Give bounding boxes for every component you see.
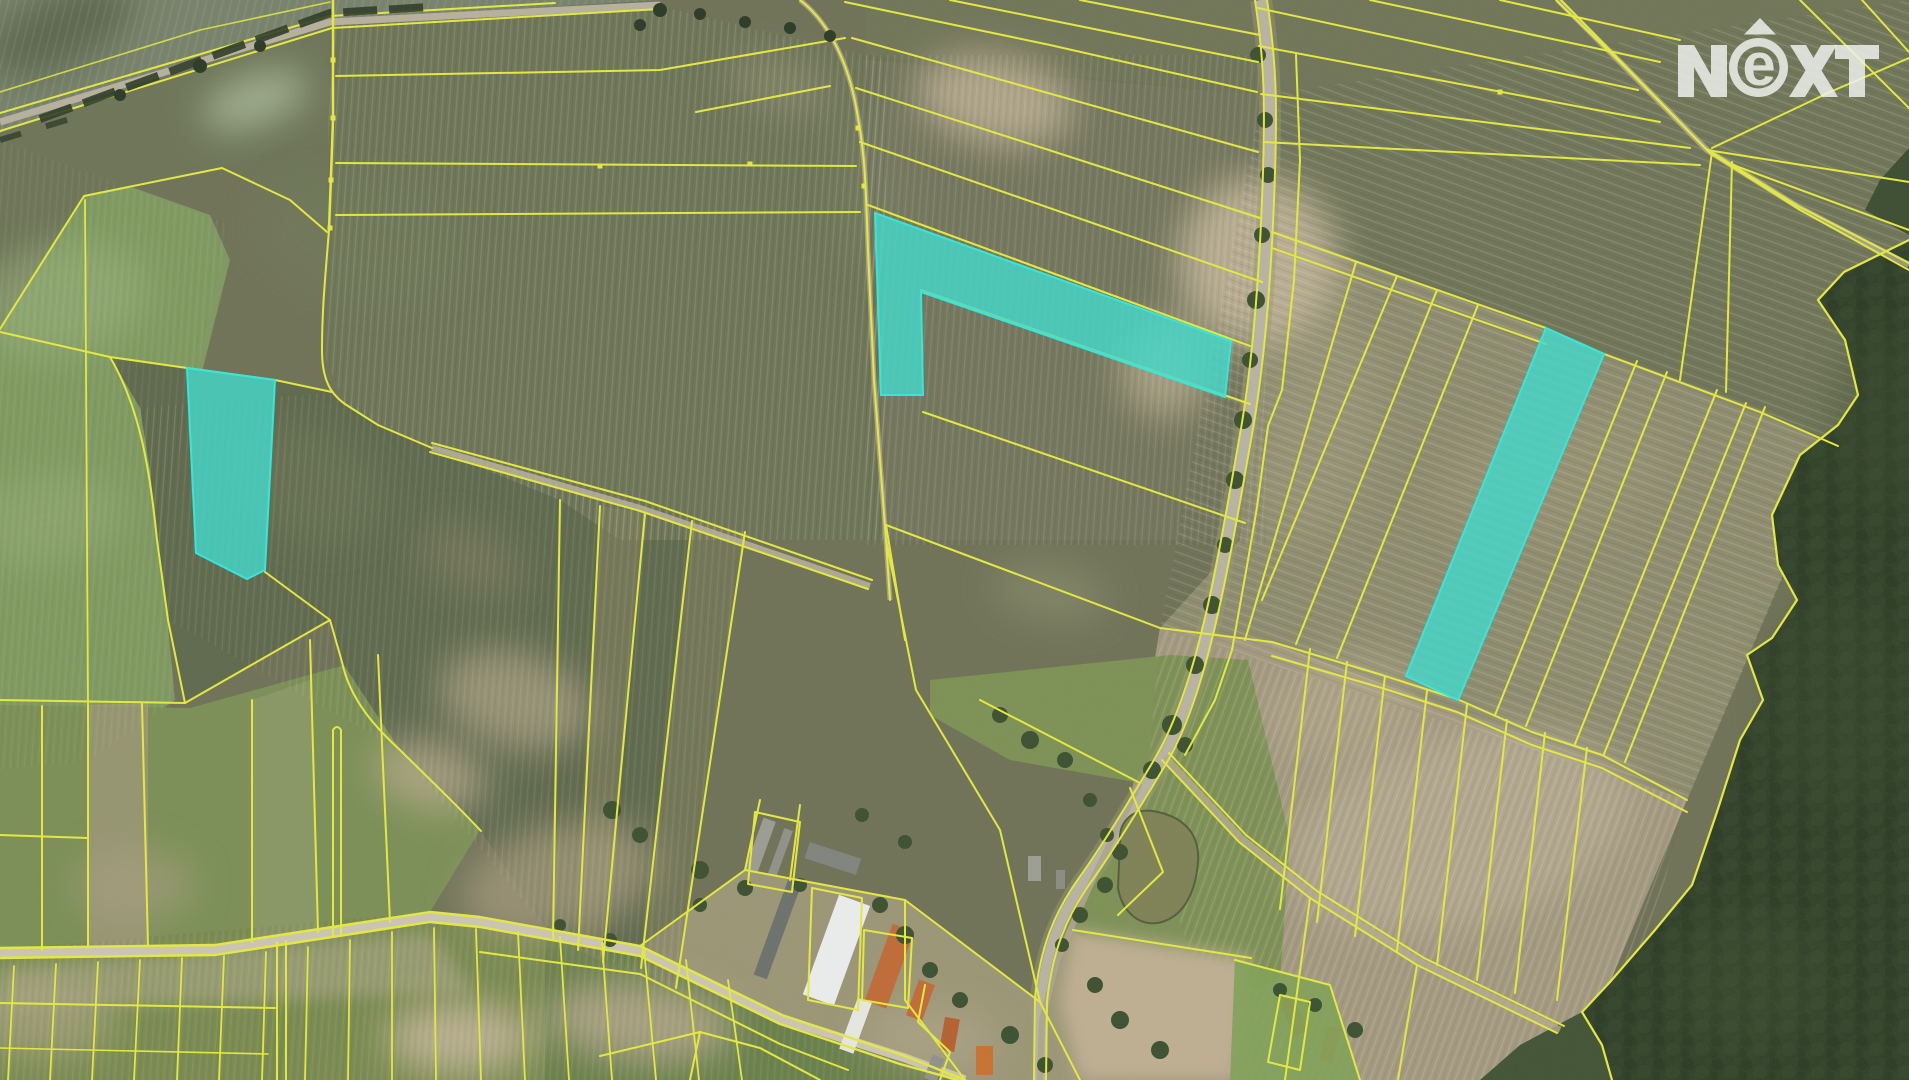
- svg-text:e: e: [1742, 31, 1775, 98]
